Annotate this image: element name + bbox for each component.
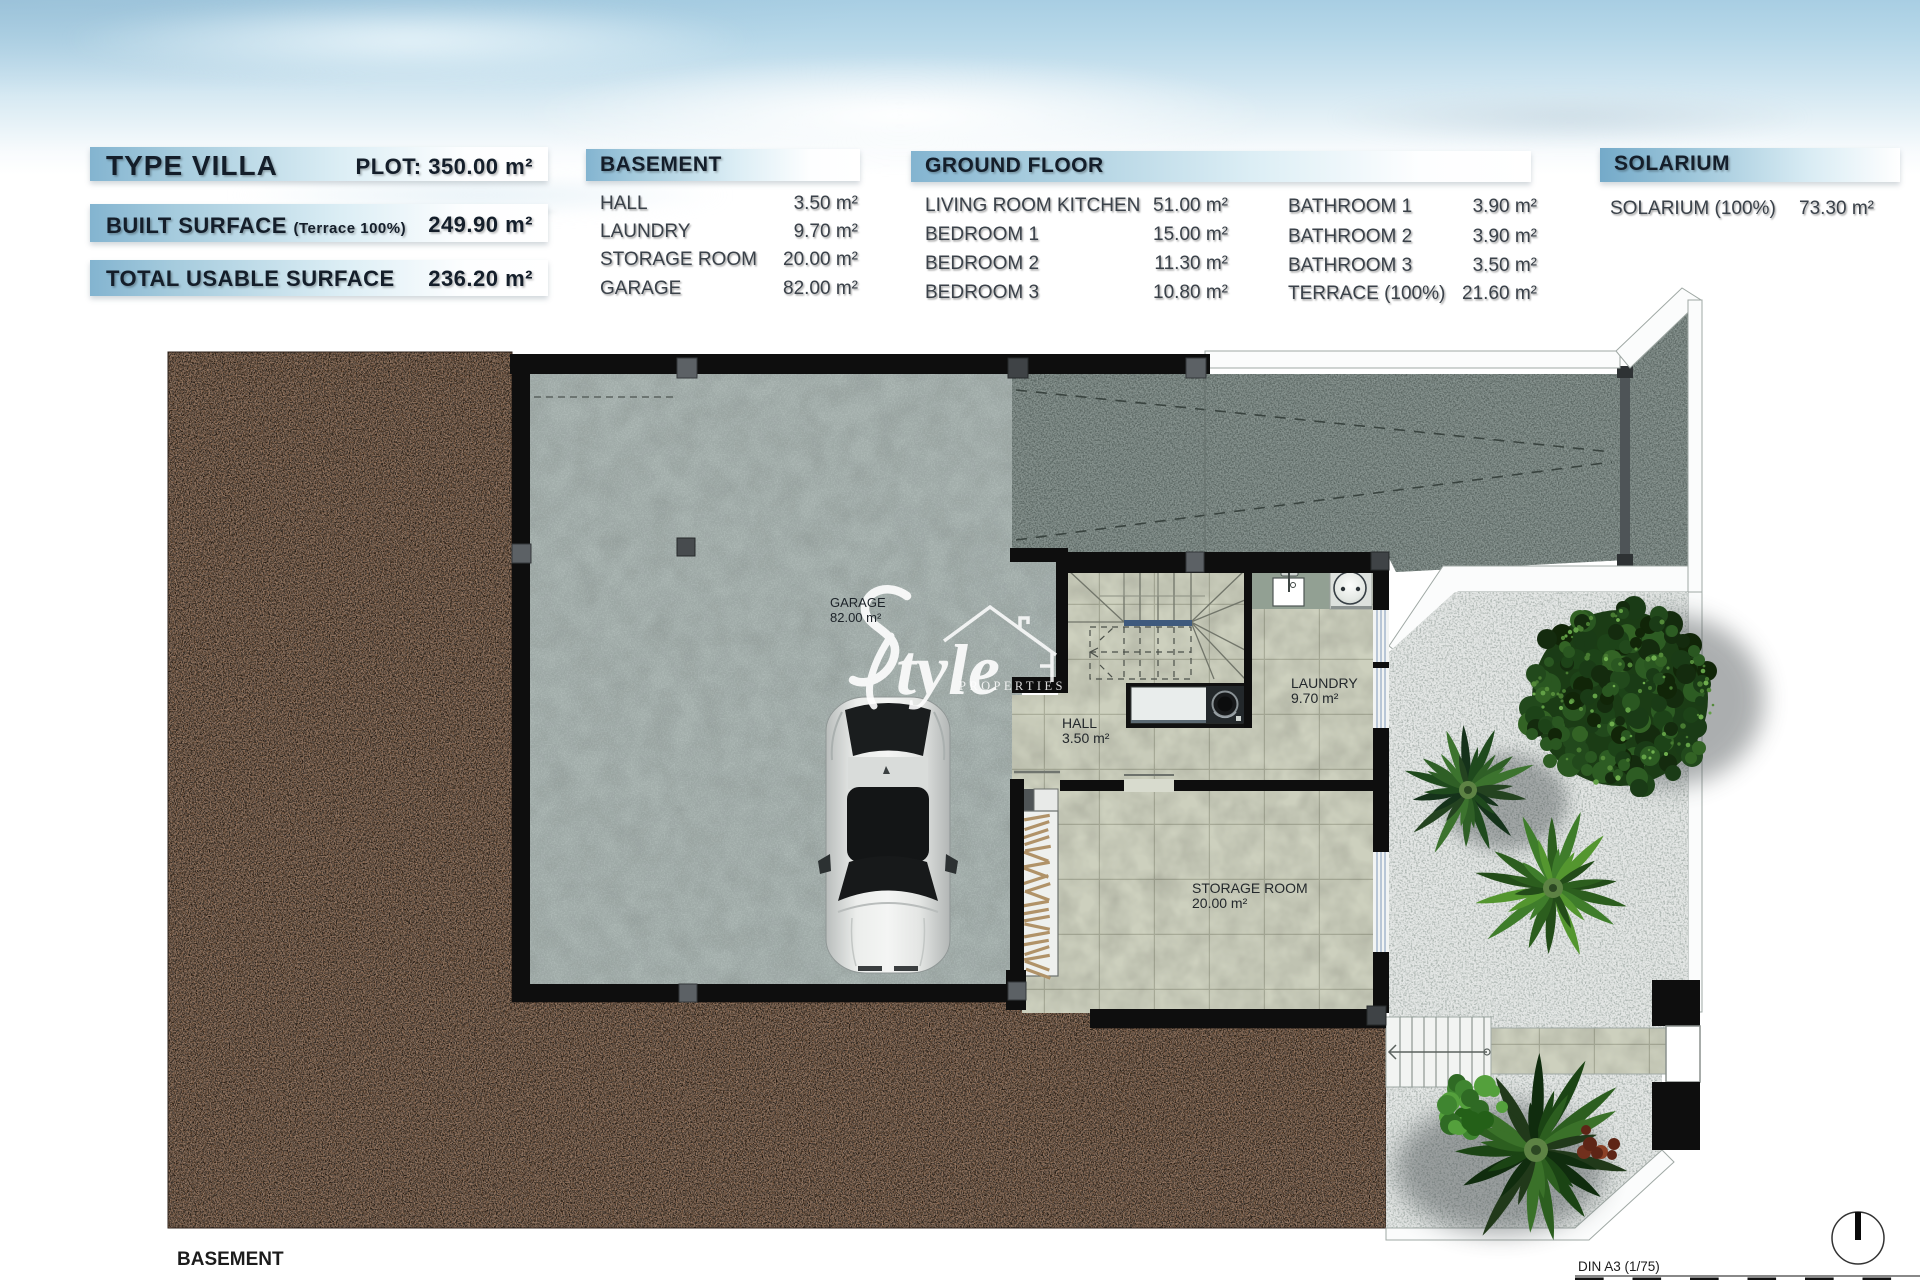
svg-text:tyle: tyle	[896, 630, 1000, 710]
svg-text:9.70 m²: 9.70 m²	[1291, 690, 1339, 706]
svg-text:HALL: HALL	[1062, 715, 1097, 731]
svg-text:DIN A3 (1/75): DIN A3 (1/75)	[1578, 1259, 1660, 1274]
svg-text:LAUNDRY: LAUNDRY	[1291, 675, 1358, 691]
svg-text:STORAGE ROOM: STORAGE ROOM	[1192, 880, 1308, 896]
svg-text:20.00 m²: 20.00 m²	[1192, 895, 1248, 911]
svg-text:GARAGE: GARAGE	[830, 595, 886, 610]
svg-text:BASEMENT: BASEMENT	[177, 1249, 284, 1270]
svg-text:3.50 m²: 3.50 m²	[1062, 730, 1110, 746]
svg-text:PROPERTIES: PROPERTIES	[959, 679, 1066, 693]
svg-text:82.00 m²: 82.00 m²	[830, 610, 882, 625]
